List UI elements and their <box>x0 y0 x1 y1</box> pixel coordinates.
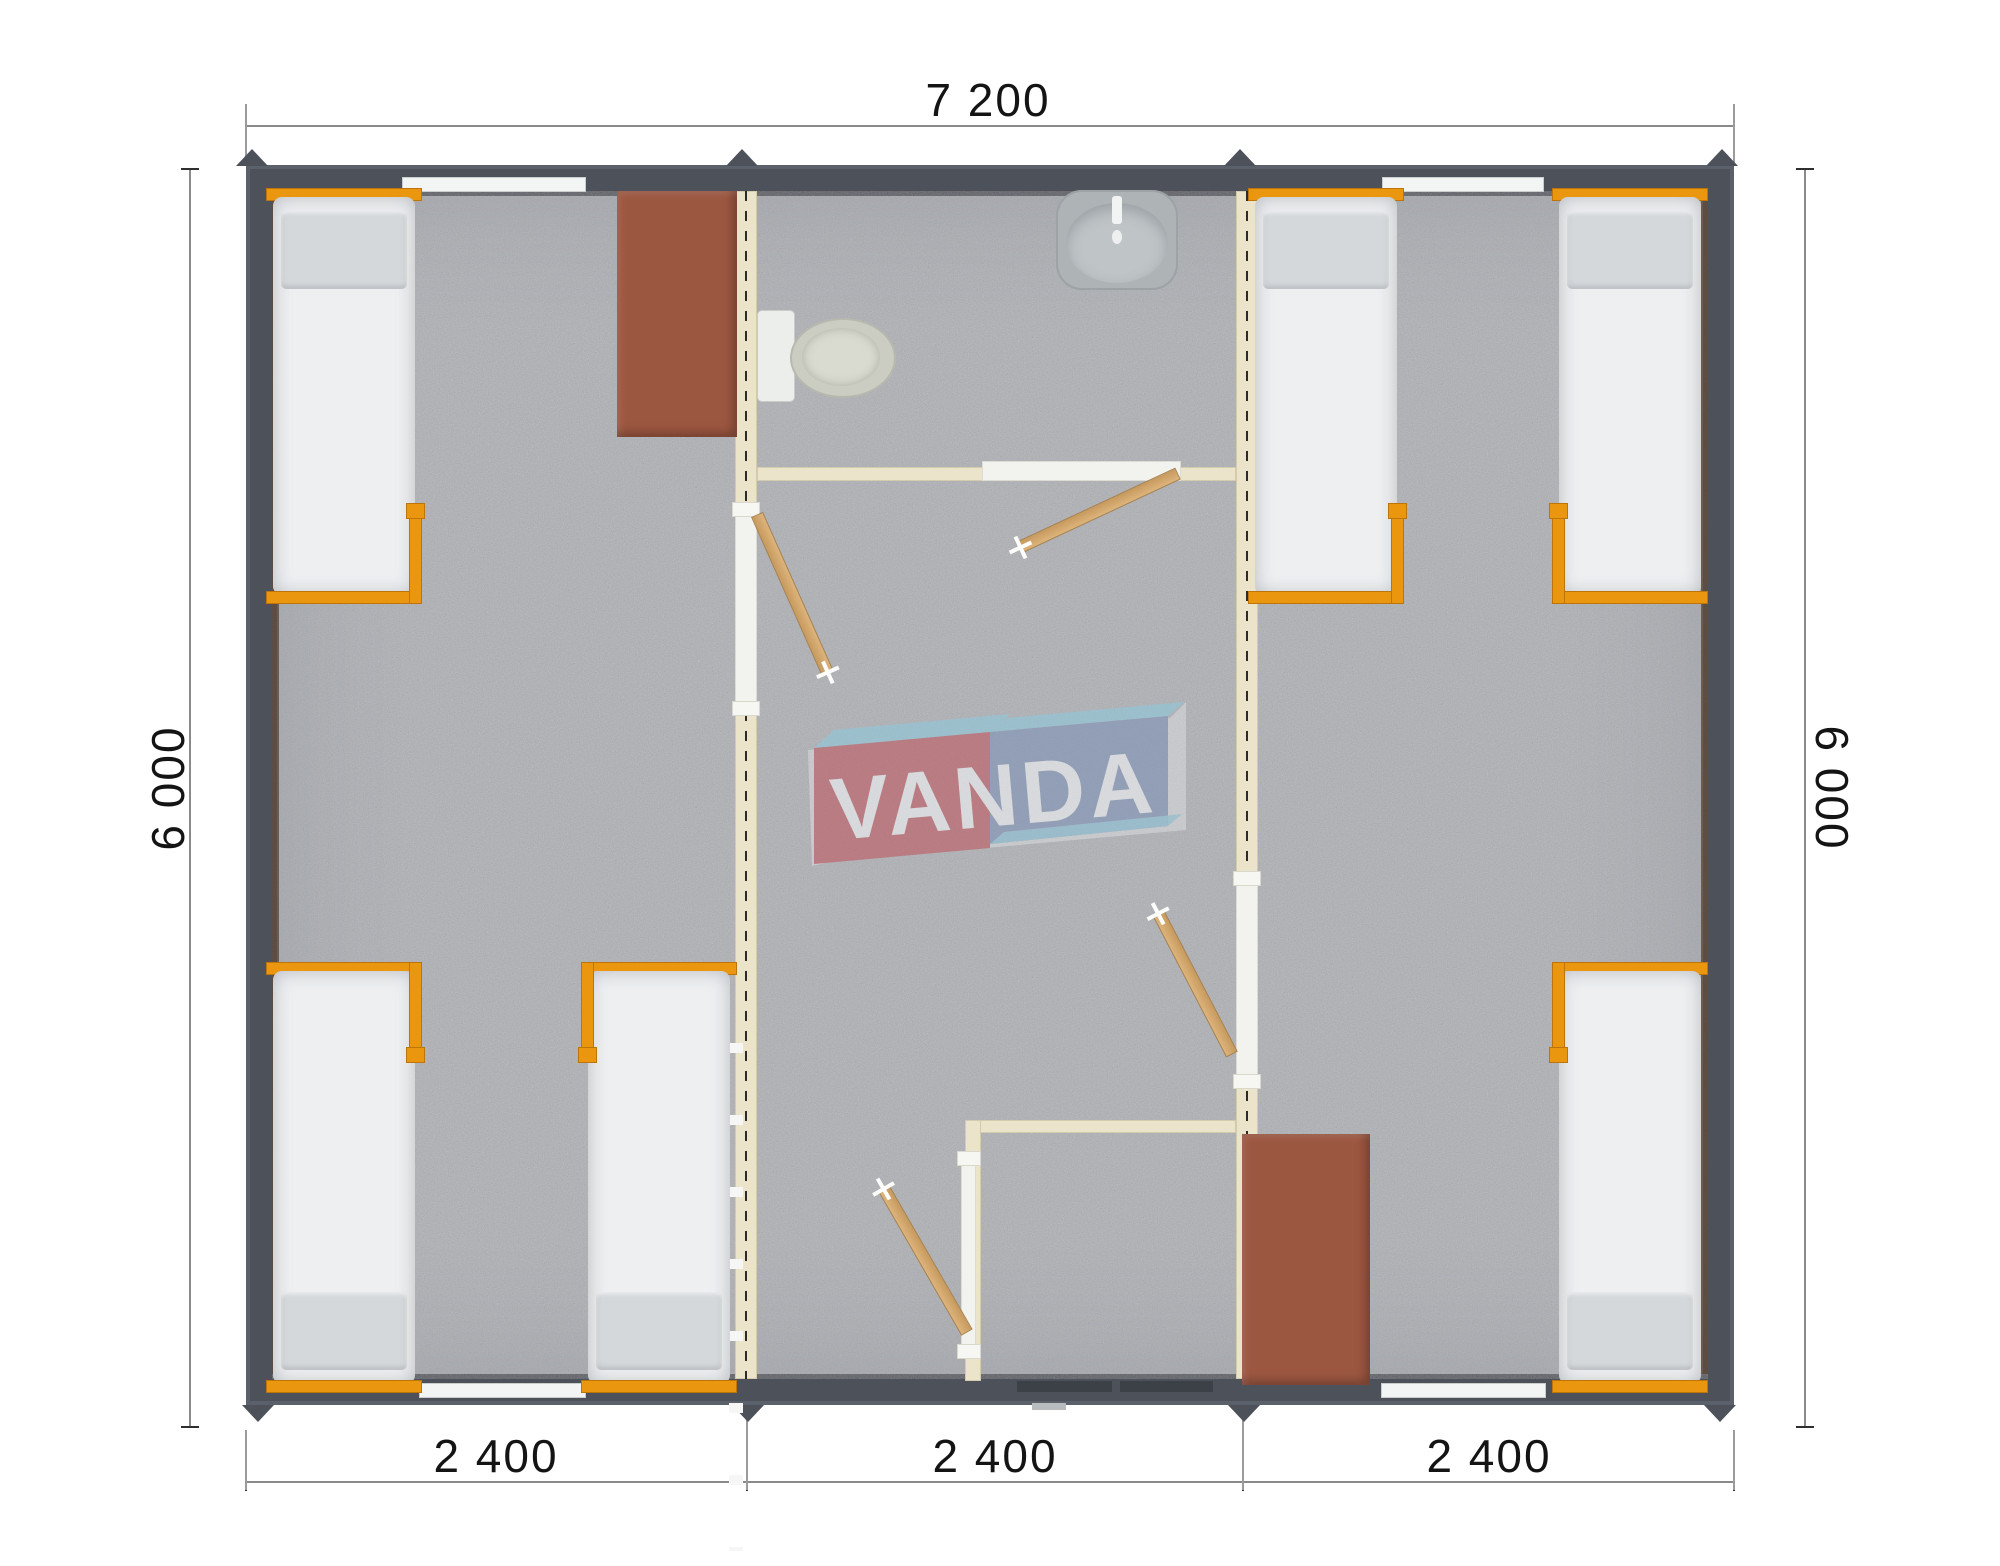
bed <box>1552 188 1708 604</box>
shower-wall-top <box>965 1120 1236 1133</box>
door-jamb <box>958 1152 980 1165</box>
dim-tick <box>1796 168 1814 170</box>
dim-line-right <box>1804 169 1806 1427</box>
window <box>1382 1384 1545 1397</box>
extension-line <box>245 1430 247 1490</box>
bed <box>266 962 422 1393</box>
entrance-door <box>1017 1381 1112 1392</box>
dim-label-bottom-2: 2 400 <box>932 1429 1057 1483</box>
bed <box>266 188 422 604</box>
toilet-bowl <box>790 318 896 398</box>
wall-centerline <box>745 191 747 1379</box>
faucet-knob <box>1112 230 1122 244</box>
door-jamb <box>1234 1075 1260 1088</box>
dim-tick <box>1796 1426 1814 1428</box>
dim-line-bottom <box>246 1481 1734 1483</box>
bed <box>1552 962 1708 1393</box>
bed <box>581 962 737 1393</box>
dim-line-left <box>189 169 191 1427</box>
bed <box>1248 188 1404 604</box>
desk <box>1242 1134 1370 1385</box>
toilet <box>757 308 897 404</box>
desk <box>617 191 737 437</box>
dim-label-bottom-1: 2 400 <box>433 1429 558 1483</box>
door-jamb <box>958 1345 980 1358</box>
dim-label-right: 6 000 <box>1805 725 1859 850</box>
dim-label-top: 7 200 <box>925 73 1050 127</box>
entrance-door-handle <box>1032 1403 1066 1410</box>
faucet-icon <box>1112 196 1122 224</box>
entrance-door <box>1120 1381 1213 1392</box>
dim-line-top <box>246 125 1734 127</box>
roof-marker-icon <box>726 149 758 166</box>
window <box>403 178 585 191</box>
door-jamb <box>1234 872 1260 885</box>
right-room-door-opening <box>1237 880 1257 1080</box>
window <box>1383 178 1543 191</box>
roof-marker-icon <box>1224 149 1256 166</box>
left-room-door-opening <box>736 510 756 708</box>
bathroom-door-panel <box>983 462 1180 480</box>
dim-label-left: 6 000 <box>141 725 195 850</box>
door-jamb <box>733 702 759 715</box>
roof-marker-icon <box>242 1405 274 1422</box>
floor-plan: 7 200 6 000 6 000 2 400 2 400 2 400 <box>0 0 2000 1566</box>
dim-tick <box>181 1426 199 1428</box>
roof-marker-icon <box>1228 1405 1260 1422</box>
extension-line <box>1733 1430 1735 1490</box>
roof-marker-icon <box>1704 1405 1736 1422</box>
vanda-logo: VANDA <box>808 698 1192 868</box>
window <box>420 1384 585 1397</box>
dim-tick <box>181 168 199 170</box>
sink <box>1056 190 1178 290</box>
roof-marker-icon <box>1706 149 1738 166</box>
partition-wall-left <box>735 191 757 1379</box>
roof-marker-icon <box>236 149 268 166</box>
dim-label-bottom-3: 2 400 <box>1426 1429 1551 1483</box>
